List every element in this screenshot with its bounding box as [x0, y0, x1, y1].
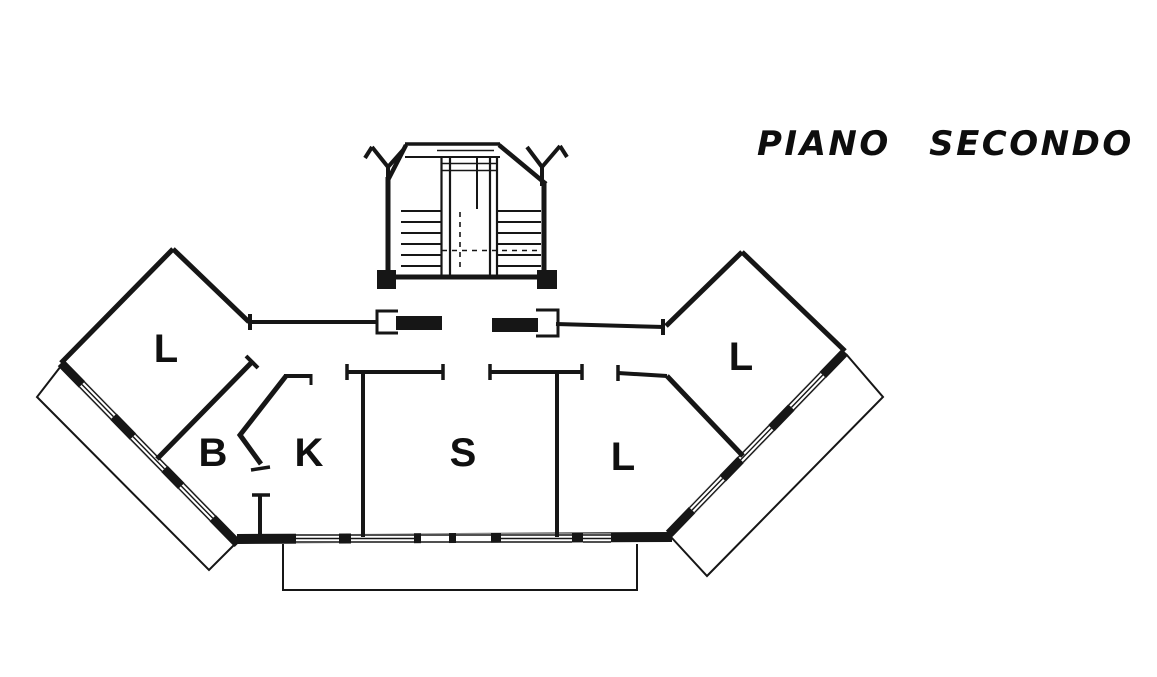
flue-y-icon-right	[527, 146, 567, 186]
window-bottom-3	[421, 534, 449, 544]
room-label-l-right-wing: L	[729, 335, 753, 379]
window-left-3	[178, 483, 216, 521]
flue-y-icon-left	[365, 147, 404, 186]
corridor-bottom-wall	[284, 364, 667, 385]
entry-door-left	[396, 316, 442, 330]
stair-foot-left	[377, 270, 396, 289]
room-label-l-center: L	[611, 435, 635, 479]
door-jamb-right	[536, 310, 558, 336]
room-label-s: S	[450, 431, 477, 475]
window-right-2	[737, 425, 774, 463]
window-bottom-4	[456, 534, 491, 544]
entry-door-right	[492, 318, 538, 332]
wall-upper-right	[742, 252, 845, 351]
divider-l-right-wing	[667, 376, 743, 456]
window-left-1	[79, 381, 117, 419]
window-bottom-1	[296, 534, 339, 544]
window-bottom-5	[501, 534, 572, 544]
window-bottom-6	[583, 534, 611, 544]
room-labels: L B K S L L	[154, 327, 753, 479]
balcony-center	[283, 544, 637, 590]
wall-upper-left	[666, 252, 742, 326]
window-right-3	[689, 475, 726, 513]
corridor-top-wall	[250, 310, 664, 336]
window-bottom-2	[351, 534, 414, 544]
wall-right-run	[556, 324, 664, 327]
stair-treads-left	[401, 211, 441, 266]
window-wall-right	[666, 349, 848, 537]
room-label-b: B	[199, 431, 228, 475]
wall-upper-right	[173, 249, 249, 322]
room-label-l-left-wing: L	[154, 327, 178, 371]
stair-treads-right	[497, 211, 541, 266]
plan-title: PIANO SECONDO	[757, 124, 1134, 164]
right-wing-walls	[666, 252, 845, 351]
staircase	[365, 144, 567, 289]
window-wall-bottom	[237, 534, 672, 544]
balcony-right	[671, 354, 883, 576]
floor-plan-page: L B K S L L PIANO SECONDO	[0, 0, 1157, 677]
stair-foot-right	[537, 270, 557, 289]
window-right-1	[788, 372, 826, 411]
door-jamb-left	[377, 311, 398, 333]
floor-plan-canvas: L B K S L L PIANO SECONDO	[0, 0, 1157, 677]
room-label-k: K	[295, 431, 324, 475]
divider-b-k	[240, 376, 286, 538]
stair-stringers	[442, 156, 498, 277]
